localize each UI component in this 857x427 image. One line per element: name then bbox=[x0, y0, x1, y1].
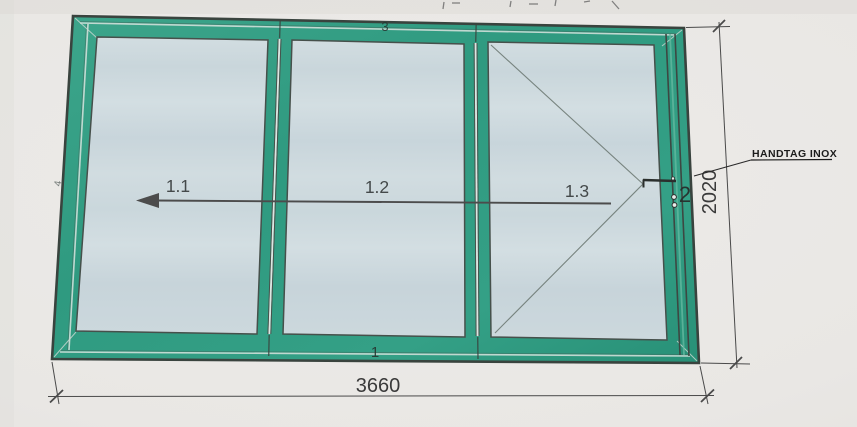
window-elevation-svg: 1.1 1.2 1.3 3 1 2 4 3660 2020 HAN bbox=[0, 0, 857, 427]
mullion-1-top-tick bbox=[280, 20, 281, 38]
height-ext-line-bottom bbox=[701, 363, 750, 364]
mullion-1-bottom-tick bbox=[269, 335, 270, 356]
panel-label-1-1: 1.1 bbox=[166, 176, 190, 196]
handle-note-label: HANDTAG INOX bbox=[752, 148, 837, 160]
scanned-drawing-photo: 1.1 1.2 1.3 3 1 2 4 3660 2020 HAN bbox=[0, 0, 857, 427]
mullion-2-top-tick bbox=[476, 23, 477, 42]
lock-cylinder-top bbox=[672, 195, 677, 200]
paper-top-shade bbox=[0, 0, 857, 14]
paper-left-shade bbox=[0, 0, 14, 427]
member-mark-bottom: 1 bbox=[371, 344, 379, 361]
height-ext-line-top bbox=[686, 27, 730, 28]
member-mark-right: 2 bbox=[679, 182, 691, 207]
handle-note-leader bbox=[694, 160, 751, 176]
panel-label-1-3: 1.3 bbox=[565, 181, 589, 201]
handle-plate-screw bbox=[671, 177, 674, 180]
member-mark-top: 3 bbox=[381, 19, 388, 34]
height-tick-bottom bbox=[730, 357, 742, 369]
height-dimension-value: 2020 bbox=[699, 170, 721, 215]
lock-cylinder-bottom bbox=[672, 203, 677, 208]
width-dimension-value: 3660 bbox=[356, 375, 401, 397]
height-dim-line bbox=[719, 22, 737, 368]
panel-label-1-2: 1.2 bbox=[365, 177, 389, 197]
handle-bar bbox=[643, 180, 676, 181]
